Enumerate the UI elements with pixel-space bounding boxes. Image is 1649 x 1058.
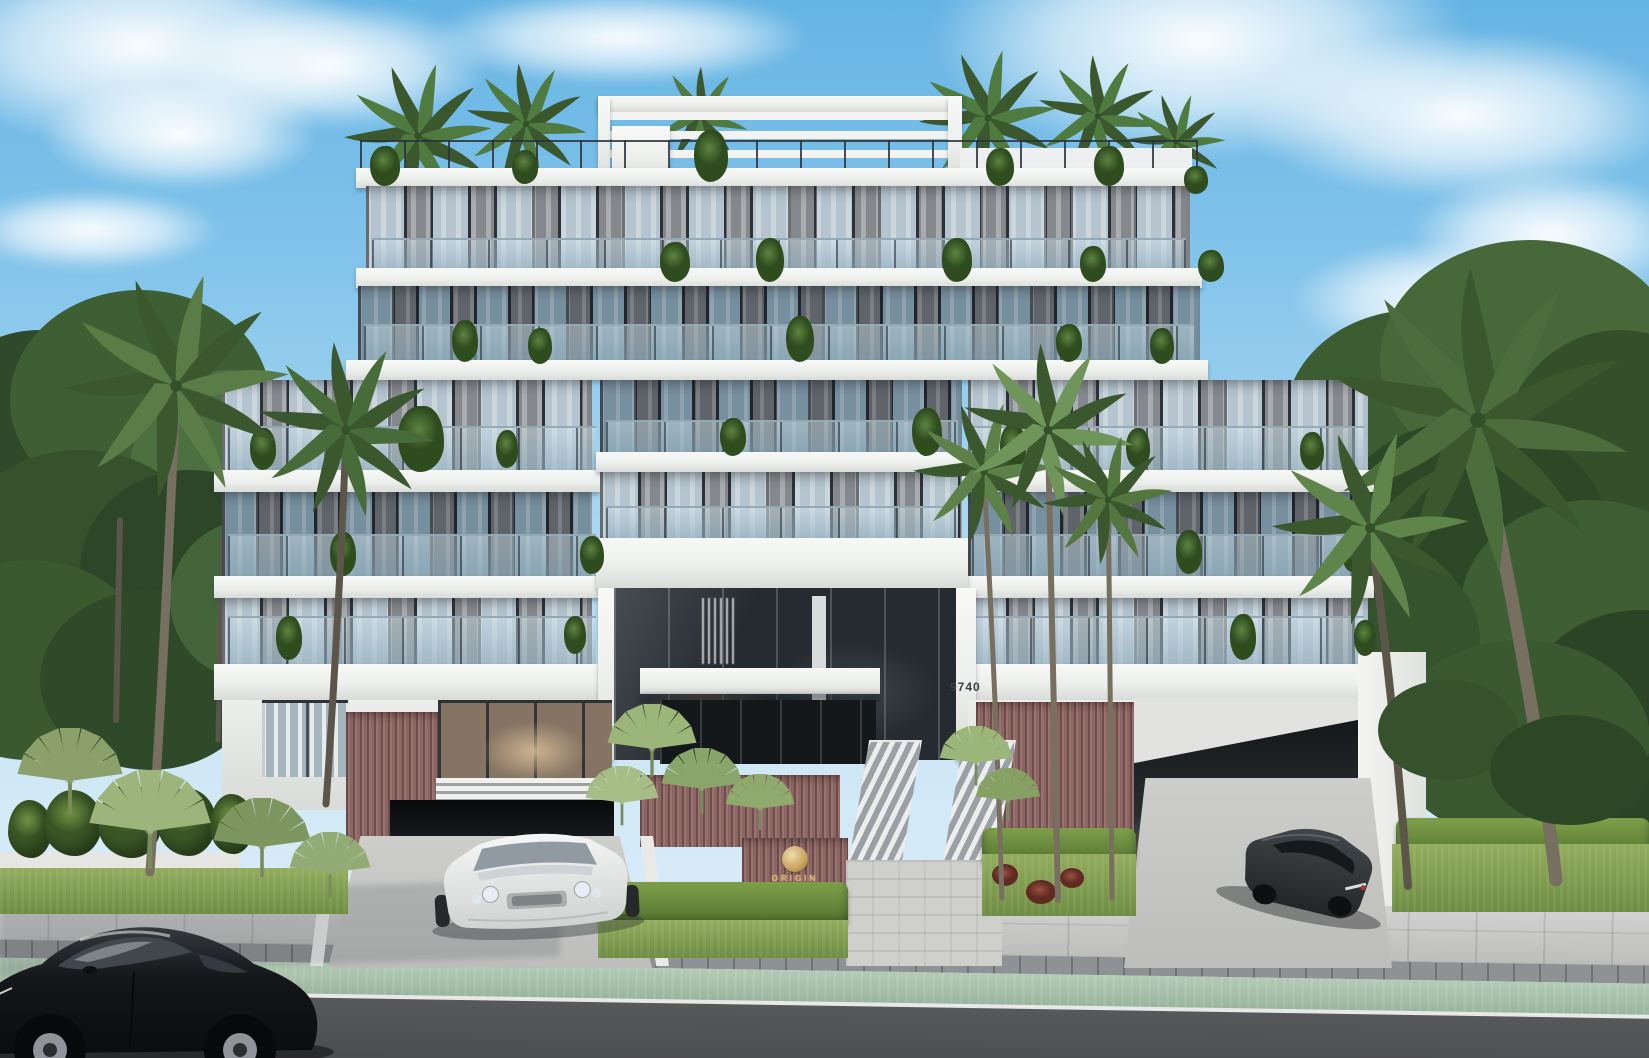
scene-architectural-rendering: 9740 ORIGIN [0, 0, 1649, 1058]
black-sedan [0, 927, 334, 1058]
street-car-layer [0, 0, 1649, 1058]
